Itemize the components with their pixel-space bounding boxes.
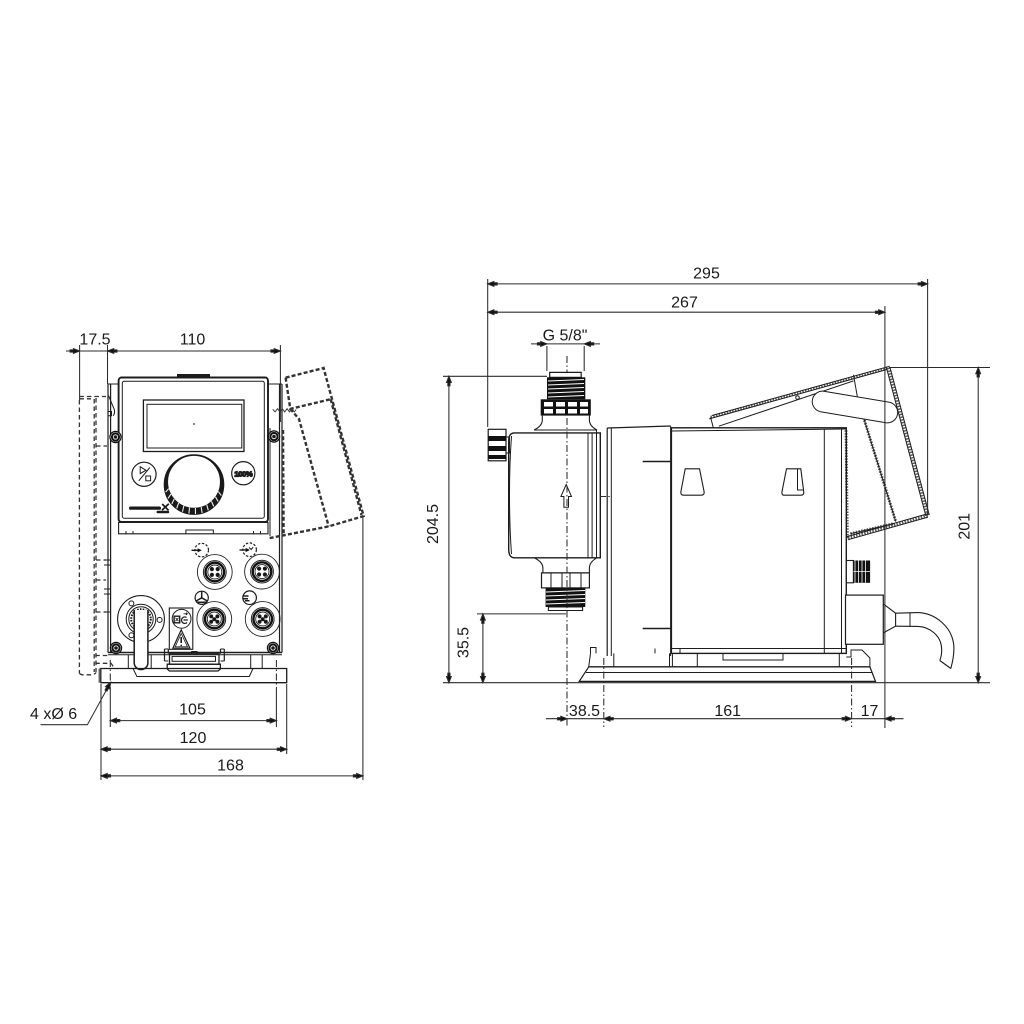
svg-text:35.5: 35.5	[456, 627, 473, 658]
svg-text:105: 105	[179, 702, 206, 719]
svg-text:161: 161	[714, 703, 741, 720]
svg-text:100%: 100%	[234, 469, 252, 478]
svg-text:17: 17	[861, 703, 879, 720]
svg-text:204.5: 204.5	[425, 504, 442, 544]
svg-text:4 xØ 6: 4 xØ 6	[30, 706, 77, 723]
svg-text:168: 168	[217, 758, 244, 775]
svg-text:17.5: 17.5	[79, 332, 110, 349]
svg-text:295: 295	[693, 266, 720, 283]
svg-text:38.5: 38.5	[569, 703, 600, 720]
svg-text:267: 267	[671, 295, 698, 312]
svg-text:G 5/8": G 5/8"	[543, 328, 588, 345]
svg-text:120: 120	[180, 730, 207, 747]
svg-text:110: 110	[180, 332, 206, 349]
svg-text:201: 201	[957, 513, 974, 540]
